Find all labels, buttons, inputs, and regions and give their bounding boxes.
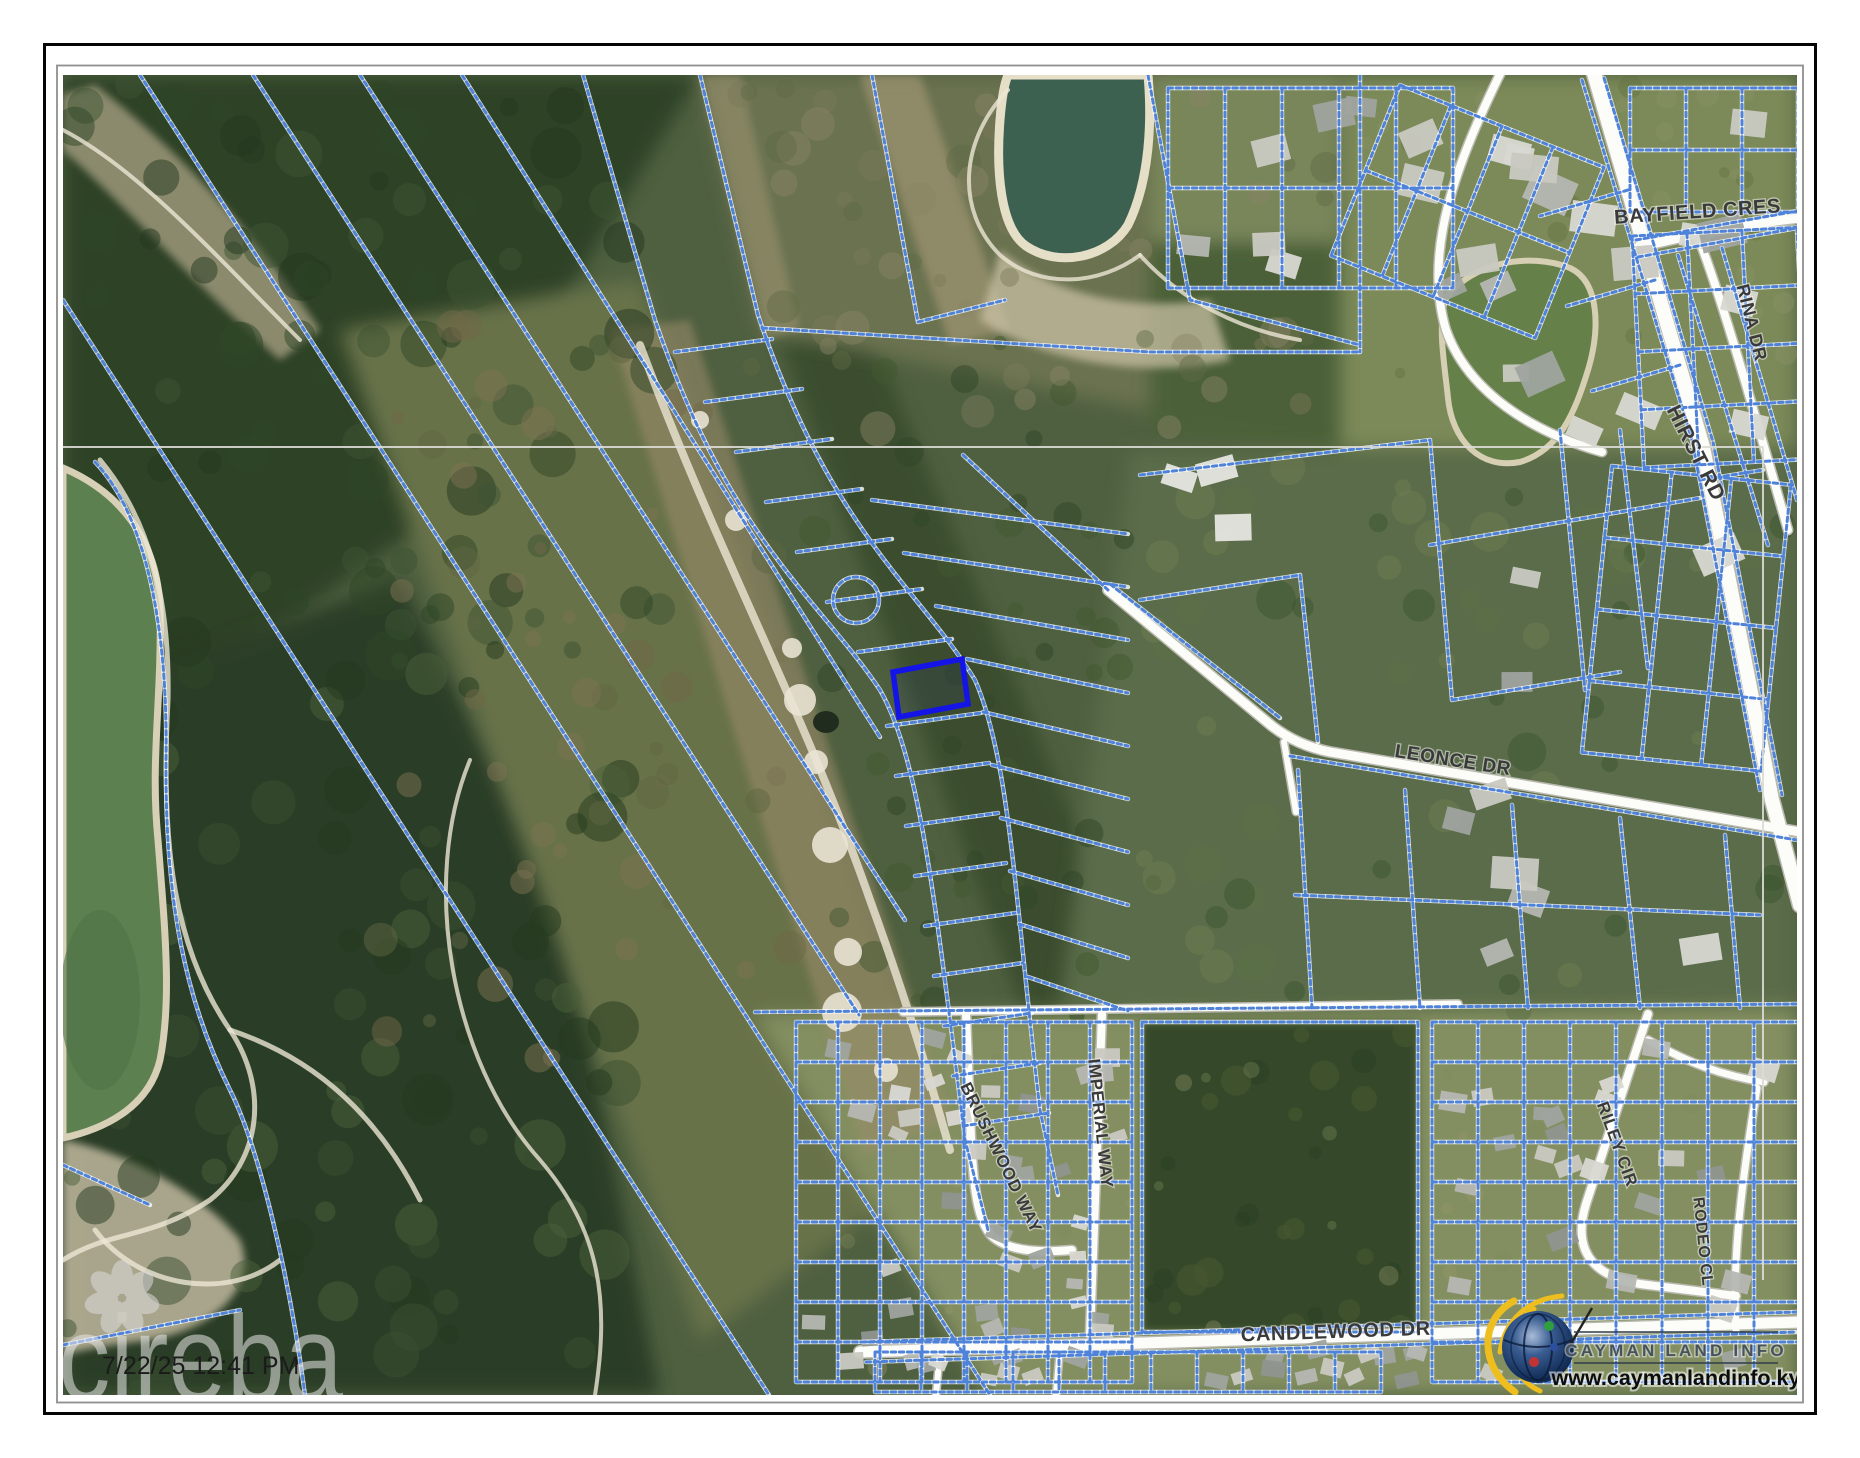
org-name: CAYMAN LAND INFO xyxy=(1565,1341,1787,1360)
website-url: www.caymanlandinfo.ky xyxy=(1551,1366,1801,1390)
highlighted-parcel xyxy=(893,659,968,717)
small-pond xyxy=(813,711,839,733)
map-canvas: BAYFIELD CRESRINA DRHIRST RDLEONCE DRCAN… xyxy=(0,0,1860,1458)
pond-top xyxy=(999,75,1150,258)
timestamp-label: 7/22/25 12:41 PM xyxy=(102,1352,299,1380)
map-image: BAYFIELD CRESRINA DRHIRST RDLEONCE DRCAN… xyxy=(49,70,1809,1426)
parcel-map-report: BAYFIELD CRESRINA DRHIRST RDLEONCE DRCAN… xyxy=(0,0,1860,1458)
